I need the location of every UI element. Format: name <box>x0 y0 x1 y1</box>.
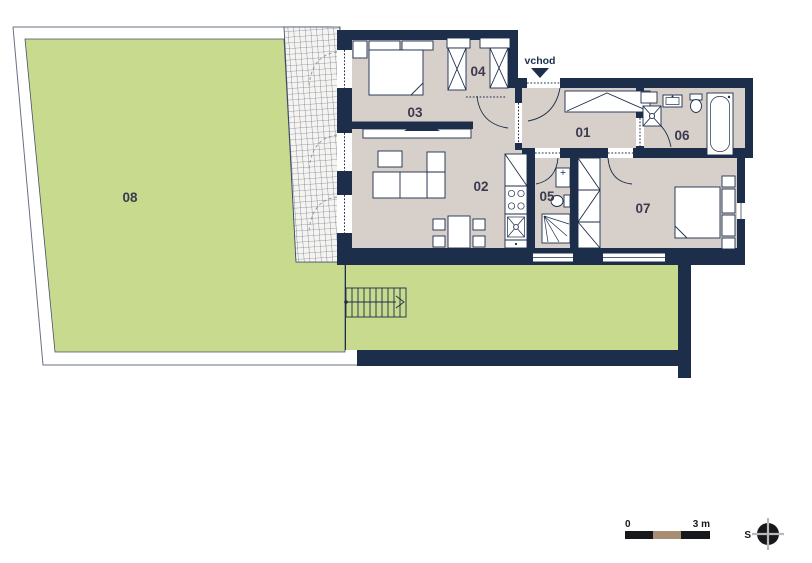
room-label-06: 06 <box>674 128 690 143</box>
hall-01-furniture <box>565 91 650 112</box>
toilet-icon <box>690 94 702 113</box>
cabinet-icon <box>353 41 367 58</box>
headboard-cabinet-icon <box>722 238 735 249</box>
tv-icon <box>404 128 440 132</box>
entrance-arrow-icon <box>531 68 549 78</box>
headboard-shelf-icon <box>369 41 400 50</box>
wardrobe-icon <box>448 48 466 90</box>
shelf-icon <box>447 38 470 48</box>
room-label-04: 04 <box>470 64 486 79</box>
kitchen-counter-icon <box>505 154 527 248</box>
bed-icon <box>369 50 423 95</box>
scale-end-label: 3 m <box>693 519 710 530</box>
headboard-cabinet-icon <box>722 189 735 213</box>
floor-plan-drawing: vchod 01 02 03 04 05 06 07 08 0 3 m S <box>0 0 812 563</box>
coffee-table-icon <box>378 151 402 167</box>
washing-machine-icon <box>542 214 570 243</box>
headboard-cabinet-icon <box>722 176 735 187</box>
wardrobe-icon <box>565 91 650 112</box>
room-label-08: 08 <box>122 190 138 205</box>
cabinet-icon <box>641 92 657 103</box>
entrance-label: vchod <box>525 55 556 67</box>
room-label-03: 03 <box>407 105 423 120</box>
bathtub-icon <box>707 93 733 155</box>
headboard-cabinet-icon <box>722 215 735 236</box>
strip-bottom-wall <box>357 350 691 366</box>
room-label-02: 02 <box>473 179 488 194</box>
scale-start-label: 0 <box>625 519 631 530</box>
headboard-shelf-icon <box>402 41 433 50</box>
shelf-icon <box>480 38 510 48</box>
shower-icon <box>643 106 661 126</box>
wardrobe-icon <box>578 158 600 248</box>
floor-plan-page: vchod 01 02 03 04 05 06 07 08 0 3 m S <box>0 0 812 563</box>
scale-bar: 0 3 m <box>625 519 710 539</box>
room-label-05: 05 <box>539 189 555 204</box>
room-label-01: 01 <box>575 125 591 140</box>
strip-right-wall <box>678 258 691 378</box>
lower-garden-strip <box>346 265 678 350</box>
room-label-07: 07 <box>635 201 650 216</box>
bed-icon <box>675 187 720 238</box>
compass-icon: S <box>744 518 784 550</box>
wardrobe-icon <box>490 48 508 88</box>
sink-icon <box>663 95 682 107</box>
sink-icon <box>556 168 570 187</box>
compass-direction-label: S <box>744 530 751 541</box>
